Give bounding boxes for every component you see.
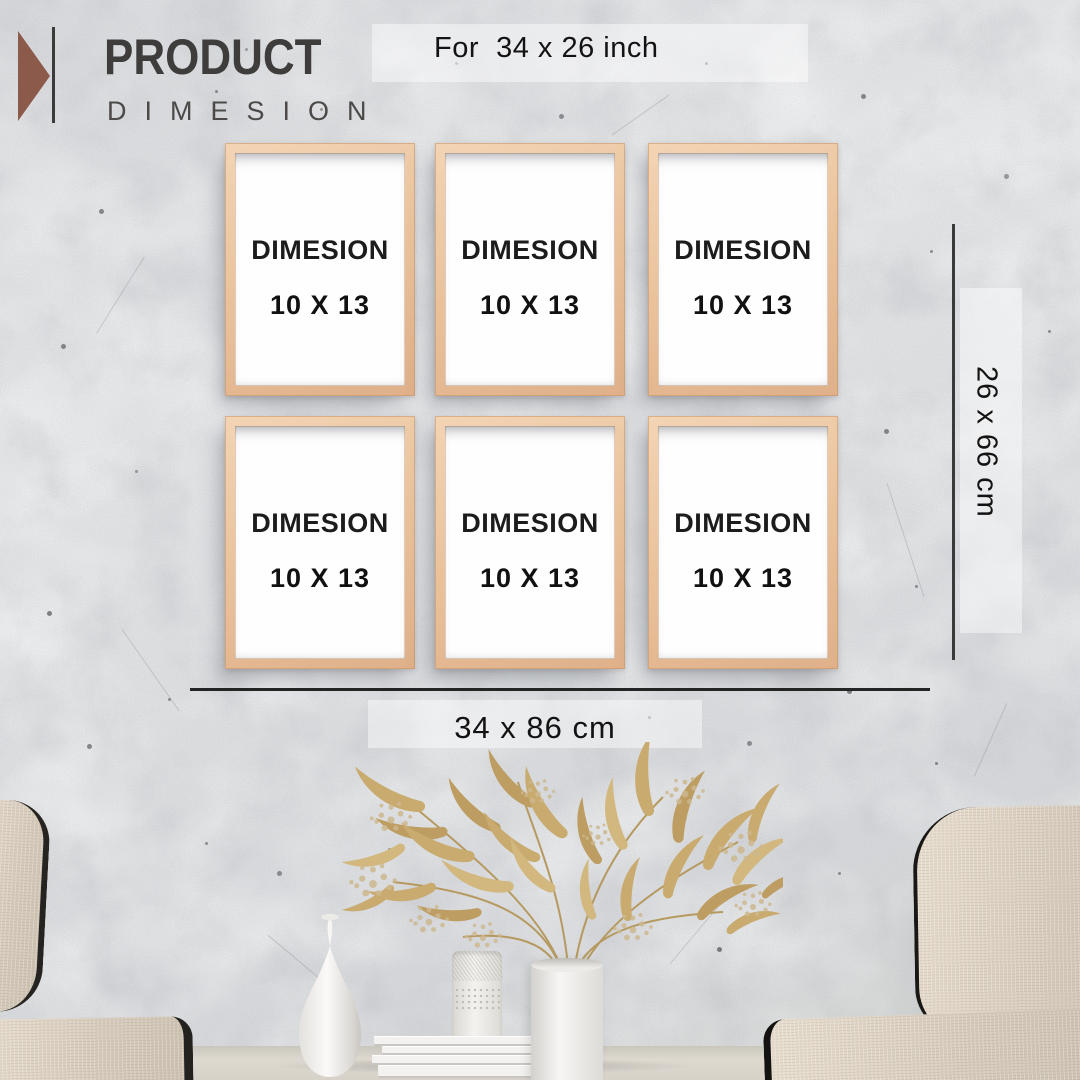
frame-label: DIMESION bbox=[251, 235, 389, 266]
picture-frame: DIMESION 10 X 13 bbox=[648, 143, 838, 396]
frame-mat: DIMESION 10 X 13 bbox=[658, 153, 828, 386]
frame-mat: DIMESION 10 X 13 bbox=[658, 426, 828, 659]
left-armchair-seat bbox=[0, 1016, 194, 1080]
right-armchair-seat bbox=[763, 1008, 1080, 1080]
book bbox=[372, 1055, 548, 1065]
frame-mat: DIMESION 10 X 13 bbox=[235, 153, 405, 386]
frame-label: DIMESION bbox=[461, 508, 599, 539]
wall-speckles bbox=[0, 0, 3, 3]
book bbox=[378, 1065, 540, 1078]
frame-label: DIMESION bbox=[461, 235, 599, 266]
page-subtitle: DIMESION bbox=[107, 96, 385, 127]
picture-frame: DIMESION 10 X 13 bbox=[225, 143, 415, 396]
book bbox=[382, 1046, 534, 1055]
book-stack bbox=[372, 1036, 550, 1078]
picture-frame: DIMESION 10 X 13 bbox=[435, 143, 625, 396]
frame-size: 10 X 13 bbox=[480, 563, 580, 594]
product-dimension-poster: PRODUCT DIMESION For 34 x 26 inch DIMESI… bbox=[0, 0, 1080, 1080]
width-dimension-label: 34 x 86 cm bbox=[368, 710, 702, 746]
cylinder-vase bbox=[531, 961, 603, 1080]
frame-size: 10 X 13 bbox=[270, 563, 370, 594]
cylinder-vase-rim bbox=[531, 958, 603, 972]
picture-frame: DIMESION 10 X 13 bbox=[648, 416, 838, 669]
picture-frame: DIMESION 10 X 13 bbox=[225, 416, 415, 669]
ribbed-vase-texture bbox=[452, 951, 502, 981]
height-dimension-line bbox=[952, 224, 955, 660]
frame-label: DIMESION bbox=[674, 235, 812, 266]
plant-decor bbox=[333, 742, 783, 980]
frame-size: 10 X 13 bbox=[480, 290, 580, 321]
frame-size: 10 X 13 bbox=[270, 290, 370, 321]
ribbed-vase-dotted-band bbox=[454, 987, 500, 1011]
right-armchair-back bbox=[912, 804, 1080, 1036]
frame-mat: DIMESION 10 X 13 bbox=[445, 426, 615, 659]
brand-triangle-icon bbox=[18, 31, 50, 121]
frame-mat: DIMESION 10 X 13 bbox=[445, 153, 615, 386]
frame-label: DIMESION bbox=[251, 508, 389, 539]
teardrop-vase bbox=[291, 912, 369, 1080]
width-dimension-line bbox=[190, 688, 930, 691]
frame-label: DIMESION bbox=[674, 508, 812, 539]
book bbox=[374, 1036, 544, 1046]
frame-size: 10 X 13 bbox=[693, 290, 793, 321]
frame-mat: DIMESION 10 X 13 bbox=[235, 426, 405, 659]
picture-frame: DIMESION 10 X 13 bbox=[435, 416, 625, 669]
frame-size: 10 X 13 bbox=[693, 563, 793, 594]
brand-divider-line bbox=[52, 27, 55, 123]
page-title: PRODUCT bbox=[104, 28, 322, 86]
height-dimension-label: 26 x 66 cm bbox=[964, 224, 1008, 660]
size-note: For 34 x 26 inch bbox=[434, 32, 659, 65]
